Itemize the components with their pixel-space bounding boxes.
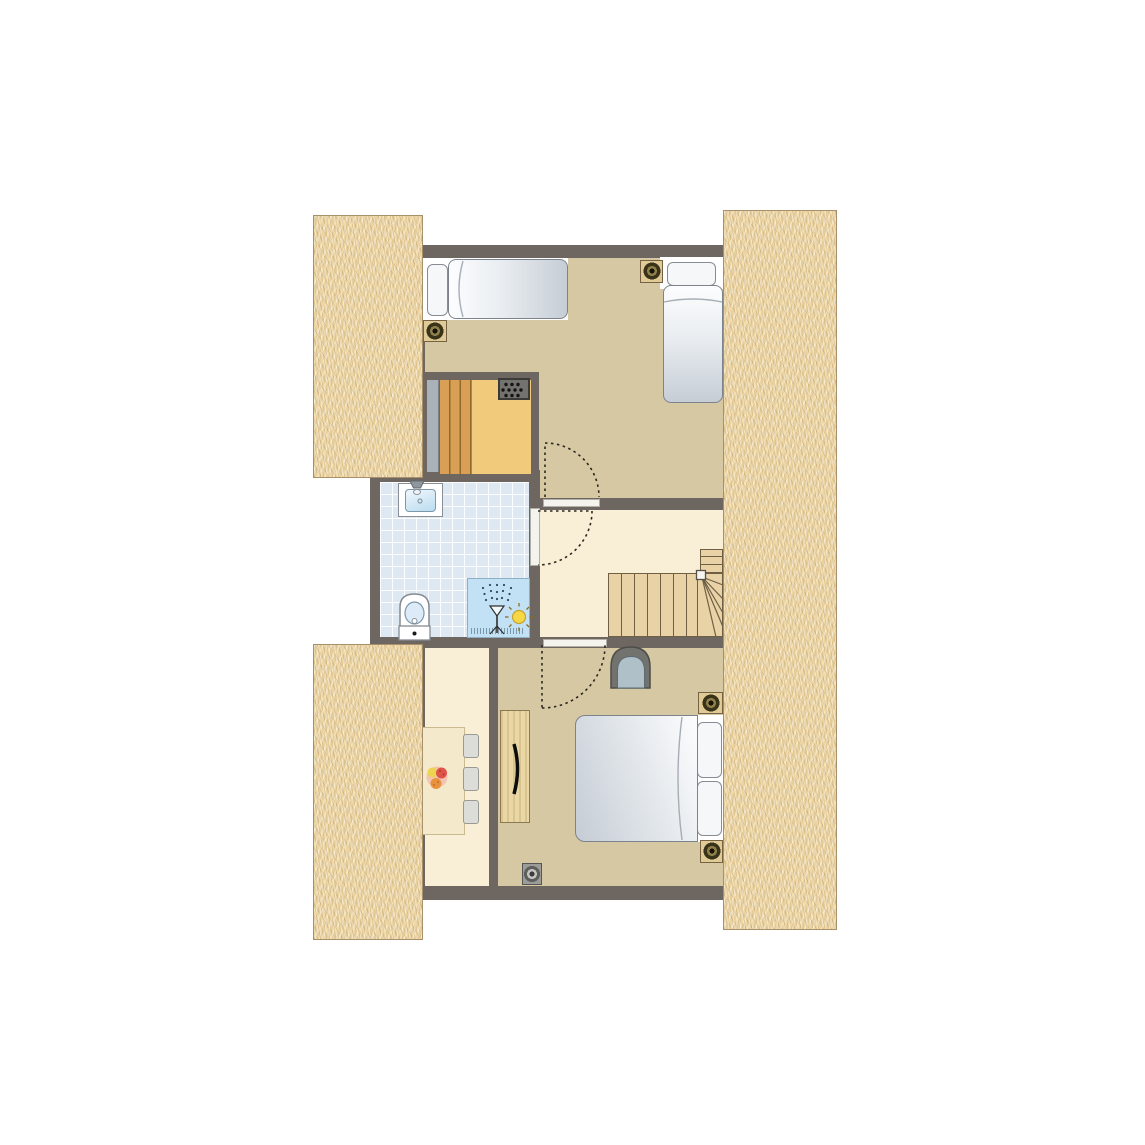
single-bed-1-pillow <box>427 264 448 316</box>
spotlight-ring-icon <box>523 865 541 883</box>
spotlight-ring-icon <box>703 842 721 860</box>
dining-chair <box>463 734 479 758</box>
dining-chair <box>463 767 479 791</box>
staircase-winder <box>698 573 723 637</box>
double-bed-pillow-1 <box>697 722 722 778</box>
shower-drain <box>471 628 525 634</box>
double-bed-mattress <box>575 715 698 842</box>
doorway-bedroom-top <box>543 499 600 507</box>
washbasin-bowl <box>405 489 436 512</box>
wardrobe <box>500 710 530 823</box>
spotlight-ring-icon <box>643 262 661 280</box>
sauna-floor <box>472 380 531 474</box>
sauna-bench <box>440 380 472 474</box>
spotlight-icon <box>700 840 723 863</box>
double-bed-pillow-2 <box>697 781 722 836</box>
staircase-upper-treads <box>700 549 723 573</box>
single-bed-1-mattress <box>448 259 568 319</box>
spotlight-icon <box>698 692 723 714</box>
single-bed-2-pillow <box>667 262 716 286</box>
wall-dining-bedroom <box>489 648 498 888</box>
thatch-roof-left-bottom <box>313 644 423 940</box>
floor-plan <box>0 0 1145 1145</box>
spotlight-icon <box>640 260 663 283</box>
spotlight-ring-icon <box>702 694 720 712</box>
single-bed-2-mattress <box>663 285 723 403</box>
thatch-roof-left-top <box>313 215 423 478</box>
staircase-flight <box>608 573 698 637</box>
spotlight-ring-icon <box>426 322 444 340</box>
sauna-glass-door <box>427 380 439 472</box>
spotlight-icon <box>423 320 447 342</box>
spotlight-gray-icon <box>522 863 542 885</box>
doorway-bathroom <box>530 508 540 566</box>
wall-bottom <box>420 886 728 900</box>
doorway-bedroom-bottom <box>543 639 607 647</box>
thatch-roof-right <box>723 210 837 930</box>
dining-chair <box>463 800 479 824</box>
wall-bathroom-left <box>370 470 380 648</box>
